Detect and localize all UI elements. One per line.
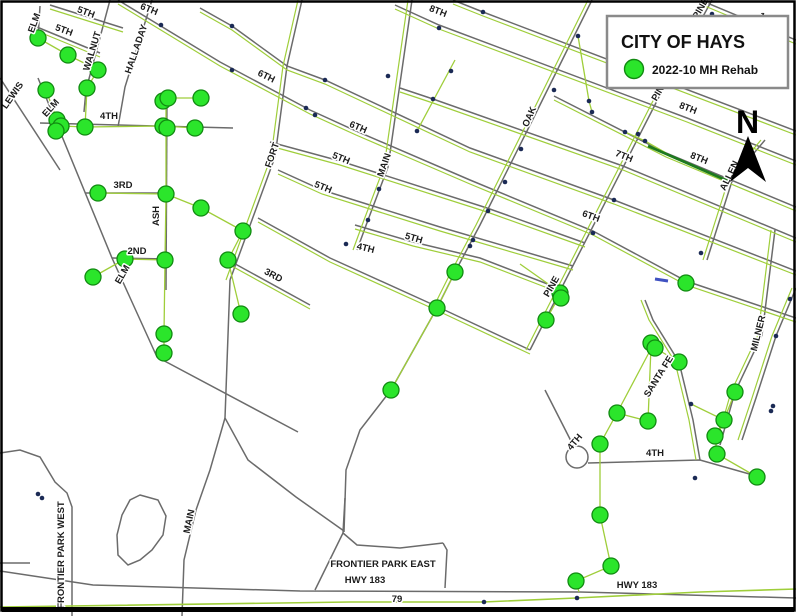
sewer-node [769,409,774,414]
manhole-marker[interactable] [592,436,608,452]
street-label: 5TH [54,22,75,39]
sewer-node [415,129,420,134]
street-park-east-top [343,533,443,548]
sewer-node [519,147,524,152]
street-label: 4TH [356,241,376,256]
manhole-marker[interactable] [38,82,54,98]
street-label: 3RD [262,266,284,285]
street-label: 6TH [348,119,369,136]
sewer-node [471,238,476,243]
street-oak-south-road [344,308,437,532]
manhole-marker[interactable] [79,80,95,96]
sewer-node [486,209,491,214]
street-label: SANTA FE [642,354,676,399]
sewer-line [85,70,98,127]
manhole-marker[interactable] [157,252,173,268]
dark-green-segment [648,146,728,181]
manhole-marker[interactable] [447,264,463,280]
sewer-node [591,231,596,236]
manhole-marker[interactable] [159,120,175,136]
sewer-node [576,34,581,39]
north-arrow-icon [730,136,766,182]
manhole-marker[interactable] [727,384,743,400]
sewer-node [612,198,617,203]
street-4th-south [588,460,760,477]
sewer-node [575,596,580,601]
legend: CITY OF HAYS 2022-10 MH Rehab [607,16,788,88]
street-label: 8TH [428,3,449,20]
north-arrow: N [730,104,766,182]
sewer-node [481,10,486,15]
manhole-marker[interactable] [48,123,64,139]
manhole-marker[interactable] [85,269,101,285]
sewer-line [578,36,589,101]
manhole-marker[interactable] [707,428,723,444]
sewer-node [313,113,318,118]
manhole-marker[interactable] [60,47,76,63]
north-letter: N [736,104,759,140]
sewer-node [468,244,473,249]
manhole-marker[interactable] [749,469,765,485]
manhole-marker[interactable] [647,340,663,356]
street-label: 4TH [100,111,118,122]
sewer-node [437,26,442,31]
blue-dash-marker[interactable] [655,279,668,281]
manhole-marker[interactable] [678,275,694,291]
sewer-node [36,492,41,497]
sewer-node [503,180,508,185]
sewer-node [230,24,235,29]
manhole-marker[interactable] [193,90,209,106]
street-label: 8TH [678,100,699,117]
manhole-marker[interactable] [609,405,625,421]
sewer-node [587,99,592,104]
sewer-node [230,68,235,73]
sewer-node [689,402,694,407]
sewer-node [693,476,698,481]
legend-title: CITY OF HAYS [621,32,745,52]
sewer-node [304,106,309,111]
street-east-edge-street [742,288,796,440]
sewer-node [386,74,391,79]
manhole-marker[interactable] [603,558,619,574]
street-label: 6TH [581,208,602,225]
street-oak [437,0,592,308]
street-park-east-right [443,543,447,588]
manhole-marker[interactable] [220,252,236,268]
manhole-marker[interactable] [158,186,174,202]
map-canvas[interactable]: 5TH5TH6TH6TH6TH5TH5TH5TH4TH3RD8TH8TH8TH7… [0,0,796,616]
pond-outline [117,495,166,565]
manhole-marker[interactable] [640,413,656,429]
sewer-node [590,110,595,115]
manhole-marker[interactable] [193,200,209,216]
sewer-node [366,218,371,223]
sewer-node [377,187,382,192]
manhole-marker[interactable] [187,120,203,136]
street-label: 6TH [139,1,160,18]
manhole-marker[interactable] [592,507,608,523]
sewer-node [159,23,164,28]
sewer-line [576,345,653,592]
street-label: MILNER [749,314,769,352]
sewer-node [643,139,648,144]
manhole-marker[interactable] [429,300,445,316]
street-label: 79 [392,594,403,605]
street-label: FRONTIER PARK WEST [56,501,67,609]
street-label: HALLADAY [123,22,150,75]
sewer-main-oak [433,0,588,308]
sewer-node [40,496,45,501]
street-4th-approach [545,390,572,443]
manhole-marker[interactable] [716,412,732,428]
map-window: 5TH5TH6TH6TH6TH5TH5TH5TH4TH3RD8TH8TH8TH7… [0,0,796,616]
sewer-node [774,334,779,339]
sewer-node [788,297,793,302]
manhole-marker[interactable] [233,306,249,322]
street-label: OAK [520,105,539,129]
sewer-node [449,69,454,74]
street-label: MAIN [182,508,198,534]
sewer-node [699,251,704,256]
legend-manhole-icon [625,60,644,79]
manhole-marker[interactable] [383,382,399,398]
street-4th-ave [258,218,530,350]
manhole-marker[interactable] [77,119,93,135]
manhole-marker[interactable] [538,312,554,328]
street-label: 3RD [113,180,132,191]
sewer-node [623,130,628,135]
manhole-marker[interactable] [156,326,172,342]
street-label: HWY 183 [345,575,385,586]
sewer-node [482,600,487,605]
street-label: 5TH [331,150,352,167]
manhole-marker[interactable] [235,223,251,239]
street-labels-layer: 5TH5TH6TH6TH6TH5TH5TH5TH4TH3RD8TH8TH8TH7… [0,0,782,609]
sewer-nodes-layer [36,10,793,605]
sewer-node [552,88,557,93]
manhole-marker[interactable] [90,185,106,201]
sewer-node [636,132,641,137]
manhole-marker[interactable] [568,573,584,589]
street-label: 4TH [646,448,664,459]
sewer-node [323,78,328,83]
streets-layer [0,0,796,616]
sewer-node [344,242,349,247]
street-label: FORT [263,141,282,169]
street-label: FRONTIER PARK EAST [330,559,436,570]
legend-item-label: 2022-10 MH Rehab [652,63,758,77]
sewer-line [228,231,243,314]
street-label: HWY 183 [617,580,657,591]
sewer-node [431,97,436,102]
manhole-marker[interactable] [709,446,725,462]
street-label: 5TH [313,179,334,196]
sewer-node [771,404,776,409]
manhole-marker[interactable] [553,290,569,306]
street-label: MAIN [375,152,393,179]
street-label: 2ND [127,246,146,257]
street-label: ASH [151,206,162,226]
manhole-marker[interactable] [156,345,172,361]
manhole-marker[interactable] [160,90,176,106]
sewer-lines-layer [0,0,796,607]
